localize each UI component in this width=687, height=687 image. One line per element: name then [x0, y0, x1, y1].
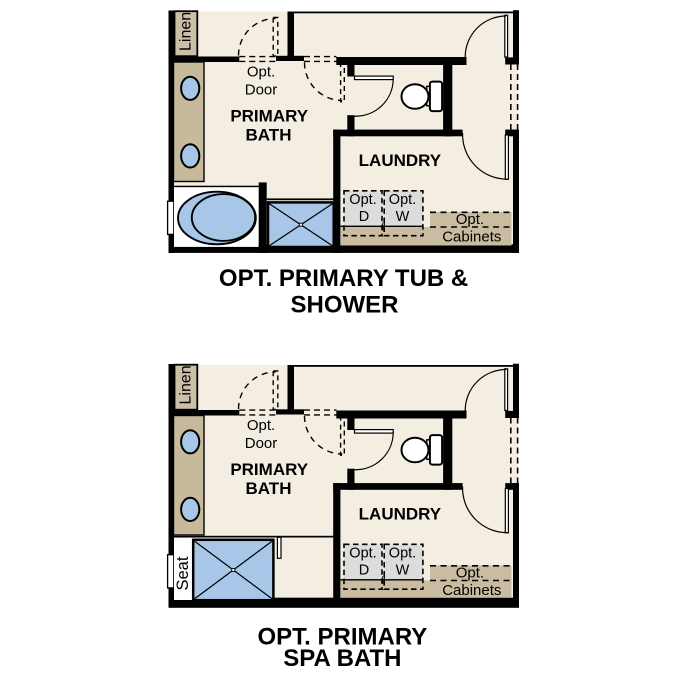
svg-text:SHOWER: SHOWER: [291, 291, 399, 318]
svg-text:OPT. PRIMARY TUB &: OPT. PRIMARY TUB &: [219, 265, 468, 292]
svg-text:SPA BATH: SPA BATH: [283, 645, 401, 672]
svg-text:Seat: Seat: [174, 556, 192, 590]
